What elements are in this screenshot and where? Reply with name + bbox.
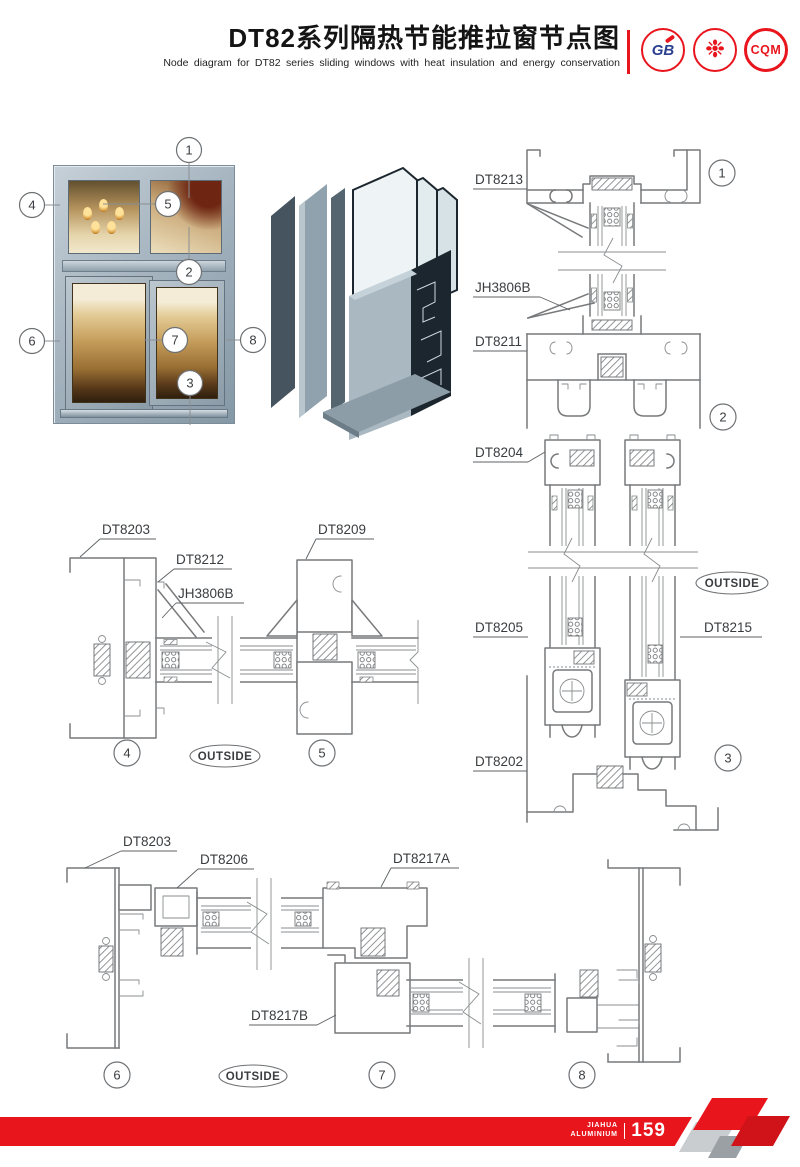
label-dt8206: DT8206 [177,852,254,888]
node-callout-2: 2 [710,404,736,430]
page-title: DT82系列隔热节能推拉窗节点图 [0,24,620,54]
left-jamb-profile [67,868,151,1048]
cqm-certification-icon: CQM [744,28,788,72]
svg-text:5: 5 [318,746,325,761]
label-dt8217a: DT8217A [381,851,459,887]
right-jamb-assembly [567,860,680,1062]
svg-text:OUTSIDE: OUTSIDE [198,751,253,763]
node-callout-1: 1 [709,160,735,186]
svg-text:DT8217B: DT8217B [251,1008,308,1023]
svg-text:1: 1 [185,143,192,158]
header-divider [627,30,630,74]
svg-text:DT8212: DT8212 [176,552,224,567]
svg-text:6: 6 [28,334,35,349]
svg-text:OUTSIDE: OUTSIDE [705,578,760,590]
node-callout-3: 3 [715,745,741,771]
outside-badge: OUTSIDE [219,1065,287,1087]
photo-callout-8: 8 [241,328,266,353]
label-dt8203: DT8203 [80,522,156,557]
quality-seal-icon: ❉ [693,28,737,72]
catalog-page: DT82系列隔热节能推拉窗节点图 Node diagram for DT82 s… [0,0,800,1167]
sliding-glazing-band [407,958,555,1048]
brand-name: JIAHUA ALUMINIUM [571,1122,618,1140]
footer-bar: JIAHUA ALUMINIUM 159 [0,1117,692,1146]
dt8217a-profile [323,882,427,958]
svg-text:DT8203: DT8203 [123,834,171,849]
node-callout-7: 7 [369,1062,395,1088]
svg-text:DT8209: DT8209 [318,522,366,537]
svg-text:3: 3 [186,376,193,391]
svg-text:DT8213: DT8213 [475,172,523,187]
horizontal-section-diagram-lower: DT8203 DT8206 DT8217A DT8217B OUTSIDE 6 … [55,830,800,1095]
svg-text:8: 8 [249,333,256,348]
brand-separator [624,1123,626,1139]
jamb-profile [70,558,164,738]
label-dt8204: DT8204 [473,445,545,462]
footer-logo-icon [668,1096,796,1160]
node-callout-4: 4 [114,740,140,766]
label-dt8209: DT8209 [306,522,374,559]
transom-profile [527,334,700,428]
cqm-logo-text: CQM [751,43,782,57]
svg-text:JH3806B: JH3806B [178,586,234,601]
outside-badge: OUTSIDE [190,745,260,767]
svg-text:DT8215: DT8215 [704,620,752,635]
label-jh3806b: JH3806B [473,280,570,310]
svg-text:3: 3 [724,751,731,766]
brand-line-2: ALUMINIUM [571,1131,618,1140]
profile-3d-render [265,150,460,440]
svg-text:1: 1 [718,166,725,181]
label-jh3806b: JH3806B [162,586,244,618]
svg-text:2: 2 [185,265,192,280]
label-dt8202: DT8202 [473,754,527,771]
svg-text:8: 8 [578,1068,585,1083]
photo-callout-3: 3 [178,371,203,396]
fixed-glazing-band [197,878,323,970]
svg-text:DT8204: DT8204 [475,445,524,460]
node-callout-5: 5 [309,740,335,766]
photo-callout-7: 7 [163,328,188,353]
photo-callout-4: 4 [20,193,45,218]
horizontal-section-diagram-upper: DT8203 DT8212 JH3806B DT8209 OUTSIDE 4 5 [60,520,460,770]
svg-text:7: 7 [171,333,178,348]
sash-bottom-rollers [545,648,680,769]
photo-callout-6: 6 [20,329,45,354]
sash-top-rails [545,435,680,485]
label-dt8212: DT8212 [158,552,232,582]
svg-text:5: 5 [164,197,171,212]
upper-glazing-unit [528,203,666,334]
label-dt8211: DT8211 [473,334,527,351]
photo-callout-overlay: 1 4 5 2 6 7 8 3 [20,135,270,430]
dt8206-profile [155,888,197,956]
svg-text:DT8211: DT8211 [475,334,522,349]
page-subtitle: Node diagram for DT82 series sliding win… [0,57,620,69]
gb-certification-icon: GB [641,28,685,72]
svg-text:4: 4 [28,198,35,213]
svg-text:DT8205: DT8205 [475,620,523,635]
label-dt8203: DT8203 [85,834,177,868]
svg-text:DT8202: DT8202 [475,754,523,769]
label-dt8215: DT8215 [680,620,762,637]
svg-text:DT8217A: DT8217A [393,851,450,866]
svg-text:7: 7 [378,1068,385,1083]
brand-line-1: JIAHUA [571,1122,618,1131]
svg-text:4: 4 [123,746,130,761]
footer-brand: JIAHUA ALUMINIUM 159 [571,1120,666,1142]
svg-text:2: 2 [719,410,726,425]
label-dt8217b: DT8217B [249,1008,336,1025]
vertical-section-diagram: DT8213 JH3806B DT8211 DT8204 DT8205 DT82… [470,140,800,840]
label-dt8205: DT8205 [473,620,528,637]
interlock-profile [267,560,382,734]
node-callout-8: 8 [569,1062,595,1088]
node-callout-6: 6 [104,1062,130,1088]
page-number: 159 [631,1120,666,1142]
svg-text:JH3806B: JH3806B [475,280,531,295]
photo-callout-1: 1 [177,138,202,163]
svg-text:6: 6 [113,1068,120,1083]
gb-logo-text: GB [652,42,675,59]
seal-logo-glyph: ❉ [705,38,725,62]
fixed-glazing-band [156,584,297,704]
label-dt8213: DT8213 [473,172,527,189]
svg-text:DT8203: DT8203 [102,522,150,537]
photo-callout-2: 2 [177,260,202,285]
svg-text:OUTSIDE: OUTSIDE [226,1071,281,1083]
header: DT82系列隔热节能推拉窗节点图 Node diagram for DT82 s… [0,24,620,69]
outside-badge: OUTSIDE [696,572,768,594]
svg-text:DT8206: DT8206 [200,852,248,867]
photo-callout-5: 5 [156,192,181,217]
dt8217b-profile [328,955,410,1033]
